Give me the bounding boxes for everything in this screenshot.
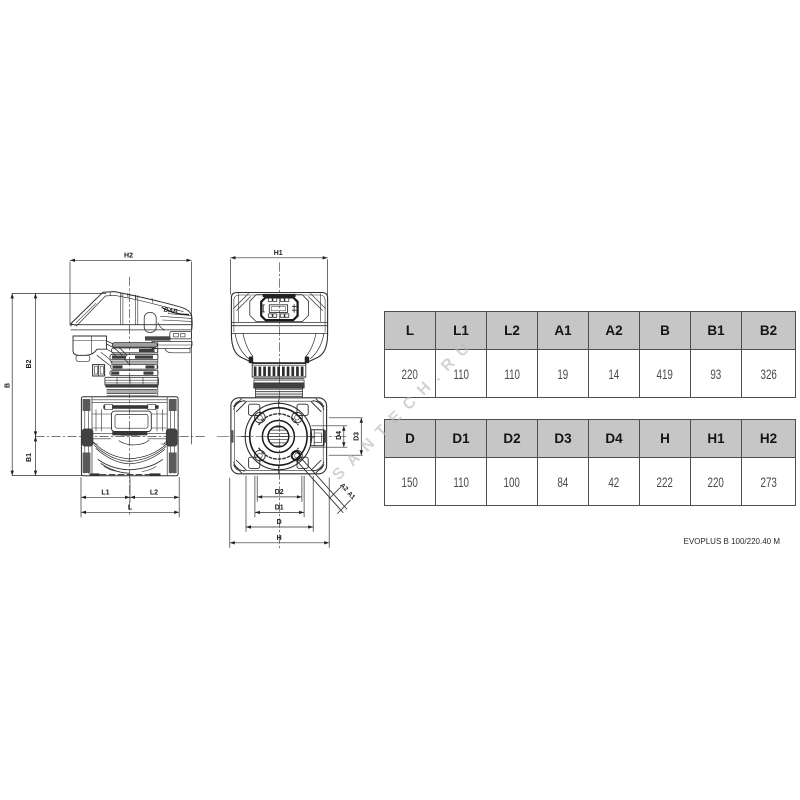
svg-text:A2: A2 — [338, 482, 349, 493]
svg-text:D: D — [277, 519, 282, 526]
svg-text:B1: B1 — [26, 453, 33, 462]
svg-text:B2: B2 — [26, 359, 33, 368]
svg-text:H1: H1 — [274, 250, 283, 257]
svg-text:H: H — [277, 535, 282, 542]
svg-text:B: B — [5, 383, 12, 388]
svg-text:L1: L1 — [101, 489, 109, 496]
svg-text:H2: H2 — [124, 253, 133, 260]
svg-text:D4: D4 — [336, 431, 343, 440]
svg-text:D3: D3 — [353, 432, 360, 441]
svg-text:A1: A1 — [345, 490, 356, 501]
svg-text:L2: L2 — [150, 489, 158, 496]
svg-text:D1: D1 — [275, 504, 284, 511]
svg-text:D2: D2 — [275, 489, 284, 496]
svg-text:L: L — [128, 504, 133, 511]
